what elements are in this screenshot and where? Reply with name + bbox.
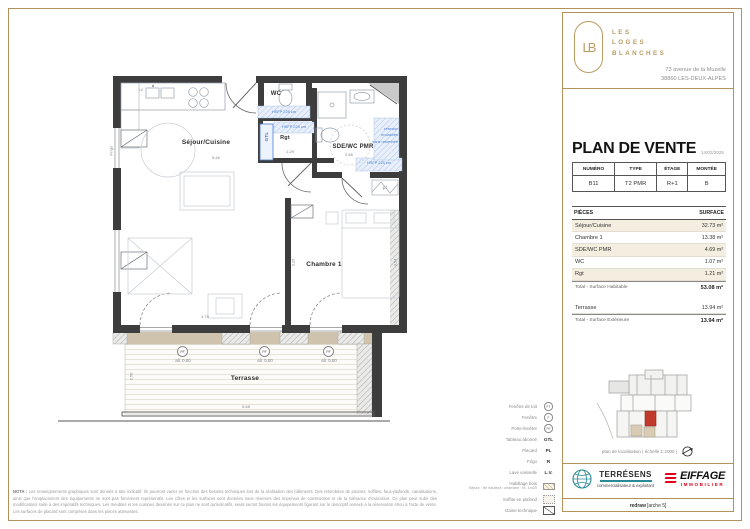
globe-icon [571,468,593,490]
note-line: sans retombée [372,139,398,144]
name-line: BLANCHES [612,49,666,59]
legend-row: Fenêtre de toit FT [509,401,556,412]
note-line: réseaux [384,126,398,131]
col-surface: SURFACE [699,210,724,216]
gtl-label: GTL [264,128,269,145]
plan-de-vente-sheet: Séjour/Cuisine WC Rgt SDE/WC PMR Chambre… [0,0,750,529]
surface-table: PIÈCES SURFACE Séjour/Cuisine32.73 m² Ch… [572,206,726,327]
unit-etage: R+1 [657,176,688,191]
terresens-logo: TERRÉSENS commercialisateur & exploitant [571,468,654,490]
roof-window-icon: FT [541,402,556,411]
legend-label: Placard [522,448,537,453]
terresens-role: commercialisateur & exploitant [597,483,654,488]
dimension: 4.75 [185,314,225,319]
room-label-sde-wc-pmr: SDE/WC PMR [312,144,394,150]
eiffage-division: IMMOBILIER [681,482,725,487]
legend-row: Soffite en plafond [503,494,556,505]
plan-legend: Fenêtre de toit FT Fenêtre F Porte-fenêt… [426,401,556,516]
note-line: encastrés [381,132,398,137]
legend-label: Soffite en plafond [503,497,537,502]
building-footprint [593,369,705,443]
highlighted-unit [645,411,656,426]
title-block-panel: LB LES LOGES BLANCHES 73 avenue de la Mu… [562,12,734,512]
sill-height: all. 0.00 [313,358,345,363]
name-line: LOGES [612,38,666,48]
pf-marker: PF [259,346,270,357]
caption-text: plan de localisation | échelle 1:2000 | [602,449,677,454]
legend-sublabel: Séjour : tte hauteur / chambre : ht. 1m2… [469,486,537,490]
legend-row: Gaine technique [505,505,556,516]
terresens-name: TERRÉSENS [599,470,652,479]
placard-symbol: PL [541,448,556,453]
total-exterieure-row: Total - Surface Extérieure13.94 m² [572,314,726,326]
les-loges-blanches-monogram-icon: LB [574,21,603,73]
address-line: 73 avenue de la Muzelle [661,66,726,75]
col-header-montee: MONTÉE [688,163,725,176]
window-icon: F [541,413,556,422]
mini-map-caption: plan de localisation | échelle 1:2000 | [563,445,733,458]
eiffage-logo: EIFFAGE IMMOBILIER [665,470,725,487]
ceiling-height-note: HSFP 225 cm [258,109,310,114]
dimension: 5.46 [196,155,236,160]
table-row: Chambre 113.38 m² [572,232,726,244]
terrace-side-hatch [357,344,372,414]
embedded-networks-note: réseaux encastrés sans retombée [368,126,398,145]
fridge-symbol: R [541,459,556,464]
address-line: 38860 LES-DEUX-ALPES [661,75,726,84]
dimension: 5.48 [226,404,266,409]
table-row: SDE/WC PMR4.69 m² [572,244,726,256]
col-header-etage: ÉTAGE [657,163,688,176]
unit-montee: B [688,176,725,191]
col-header-numero: NUMÉRO [573,163,615,176]
entry-landing [368,83,399,104]
legend-row: Tableau abonné GTL [506,434,556,445]
table-row: WC1.07 m² [572,257,726,269]
pf-marker: PF [323,346,334,357]
sill-height: all. 0.00 [167,358,199,363]
terrace-side-wall [372,332,382,417]
eiffage-name: EIFFAGE [680,470,725,482]
redraw-note: redraw [arche 5] [563,498,733,513]
ceiling-height-note: HSFP 225 cm [356,160,402,165]
table-row: Séjour/Cuisine32.73 m² [572,220,726,232]
eiffage-icon [665,473,676,483]
gtl-symbol: GTL [541,437,556,442]
unit-type: T2 PMR [615,176,657,191]
legend-row: Porte-fenêtre PF [511,423,556,434]
technical-duct-swatch [541,506,556,515]
window-swings [140,293,342,325]
wood-cladding-swatch [541,483,556,490]
dimension: 2.50 [129,366,134,388]
table-row: Rgt1.21 m² [572,269,726,281]
fridge-label: Frigo [109,138,114,164]
dimension: 1.29 [280,149,300,154]
nota-prefix: NOTA : [13,489,27,494]
legend-label: Tableau abonné [506,437,537,442]
col-header-type: TYPE [615,163,657,176]
unit-info-table: NUMÉRO TYPE ÉTAGE MONTÉE B11 T2 PMR R+1 … [572,162,726,192]
dimension: 3.15 [291,252,296,274]
unit-numero: B11 [573,176,615,191]
room-label-sejour-cuisine: Séjour/Cuisine [158,139,254,146]
legend-label: Porte-fenêtre [511,426,537,431]
ceiling-height-note: HSFP 225 cm [274,124,314,129]
developer-name: LES LOGES BLANCHES [612,28,666,59]
redraw-word: redraw [630,503,646,509]
legend-row: Frigo R [527,456,556,467]
name-line: LES [612,28,666,38]
project-address: 73 avenue de la Muzelle 38860 LES-DEUX-A… [661,66,726,83]
developer-logo-block: LB LES LOGES BLANCHES 73 avenue de la Mu… [563,13,733,89]
dimension: 3.54 [393,252,398,274]
redraw-ref: [arche 5] [647,503,666,509]
dishwasher-symbol: L.V. [541,470,556,475]
col-pieces: PIÈCES [574,210,593,216]
sill-height: all. 0.00 [249,358,281,363]
legend-label: Fenêtre de toit [509,404,537,409]
legend-label: Frigo [527,459,537,464]
room-label-rgt: Rgt [265,135,305,141]
ceiling-soffit-swatch [541,495,556,504]
legend-row: Fenêtre F [522,412,556,423]
legend-label: Fenêtre [522,415,537,420]
legend-row: Habillage bois Séjour : tte hauteur / ch… [469,478,556,494]
location-mini-map [593,369,705,443]
legend-row: Placard PL [522,445,556,456]
french-window-icon: PF [541,424,556,433]
terrasse-row: Terrasse13.94 m² [572,302,726,314]
terresens-tagline-rule [600,480,652,482]
total-habitable-row: Total - Surface Habitable53.08 m² [572,281,726,293]
dishwasher-label: LV [134,88,148,92]
pf-marker: PF [177,346,188,357]
north-arrow-icon [681,445,694,458]
room-label-chambre-1: Chambre 1 [284,261,364,268]
sheet-date: 14/02/2025 [701,150,724,155]
room-label-terrasse: Terrasse [205,375,285,382]
nota-body: Les renseignements graphiques sont donné… [13,489,437,514]
partner-logos: TERRÉSENS commercialisateur & exploitant… [563,463,733,498]
legend-label: Habillage bois Séjour : tte hauteur / ch… [469,481,537,490]
legend-row: Lave vaisselle L.V. [509,467,556,478]
sheet-title: PLAN DE VENTE [572,140,696,158]
legend-label: Gaine technique [505,508,537,513]
legend-label: Lave vaisselle [509,470,537,475]
closet-label: pl [376,185,394,190]
room-label-wc: WC [260,91,292,97]
nota-disclaimer: NOTA : Les renseignements graphiques son… [13,489,437,515]
dimension: 2.66 [336,152,362,157]
surface-table-header: PIÈCES SURFACE [572,206,726,220]
